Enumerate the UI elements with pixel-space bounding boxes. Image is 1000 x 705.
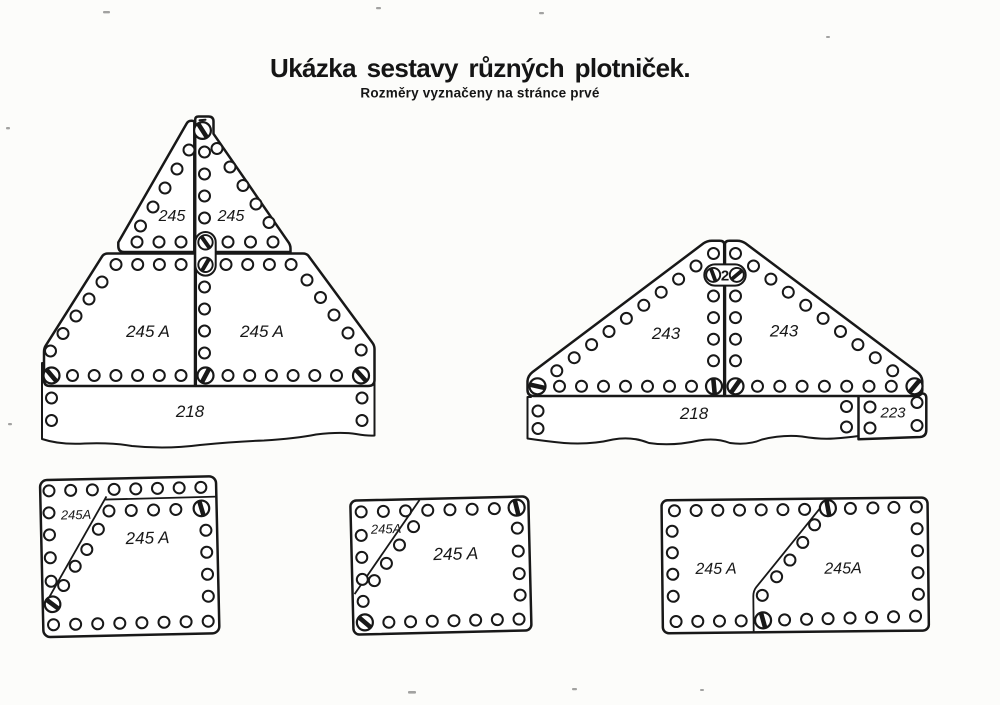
svg-text:245 A: 245 A	[694, 561, 736, 578]
svg-text:245 A: 245 A	[432, 543, 479, 564]
svg-text:Ukázka sestavy různých plotnič: Ukázka sestavy různých plotniček.	[270, 53, 690, 83]
svg-text:245: 245	[217, 208, 245, 225]
svg-text:243: 243	[769, 322, 799, 341]
svg-text:223: 223	[879, 405, 906, 422]
svg-text:245A: 245A	[823, 560, 862, 577]
svg-text:243: 243	[651, 324, 681, 343]
svg-text:Rozměry vyznačeny na stránce p: Rozměry vyznačeny na stránce prvé	[360, 86, 600, 101]
svg-text:2: 2	[721, 268, 729, 285]
svg-text:245 A: 245 A	[125, 322, 170, 341]
svg-text:218: 218	[175, 402, 205, 421]
svg-text:245: 245	[158, 208, 186, 225]
svg-text:245 A: 245 A	[239, 322, 284, 341]
svg-text:218: 218	[679, 404, 709, 423]
svg-text:245 A: 245 A	[124, 528, 169, 548]
svg-text:245A: 245A	[60, 507, 92, 523]
svg-text:245A: 245A	[370, 521, 402, 537]
